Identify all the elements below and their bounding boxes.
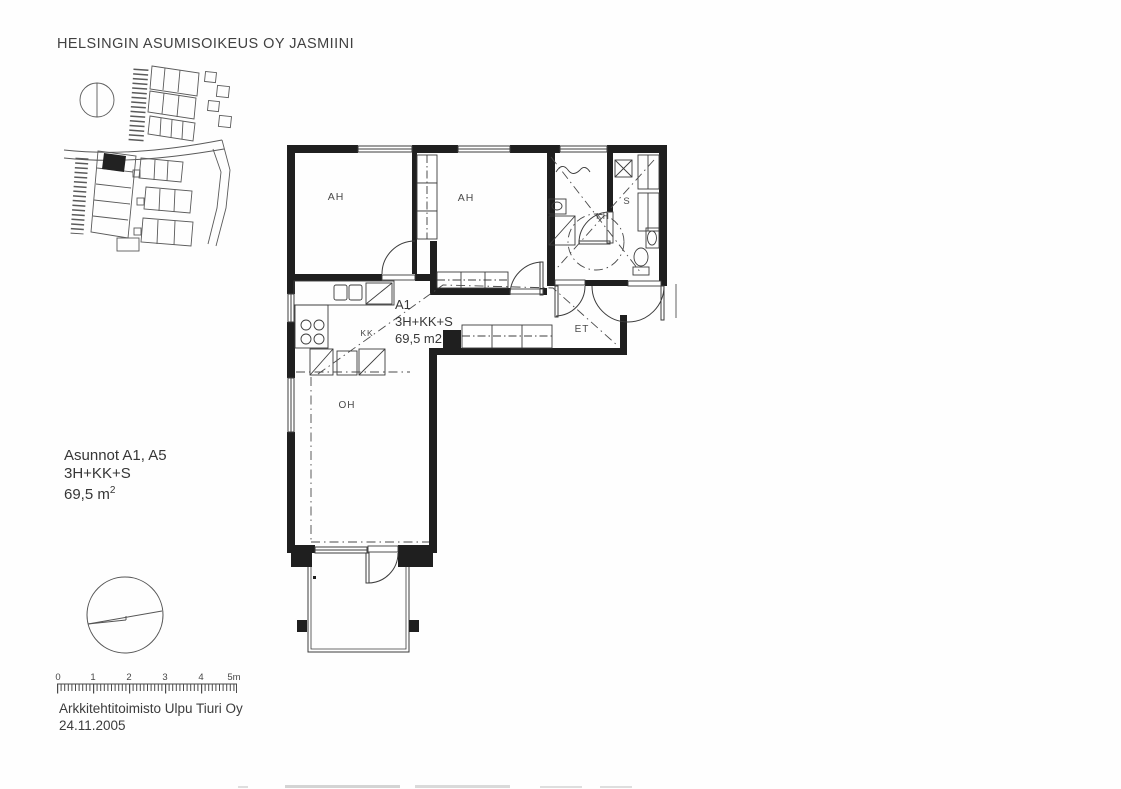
scale-labels: 0 1 2 3 4 5m <box>55 672 240 683</box>
site-road <box>64 140 230 246</box>
toilet-symbol <box>634 248 648 266</box>
duct-shaft <box>443 330 461 348</box>
sauna-bench <box>638 155 659 189</box>
floor-plan: AH AH KH S KK ET OH A1 3H+KK+S 69,5 m2 <box>287 145 676 652</box>
door-entry <box>592 286 664 322</box>
apartment-area-text: 69,5 m2 <box>395 331 442 346</box>
label-entry-hall: ET <box>575 324 590 335</box>
site-highlighted-building <box>102 153 126 172</box>
turning-circle <box>568 214 624 270</box>
scale-bar: 0 1 2 3 4 5m <box>55 672 240 693</box>
apartment-id-text: A1 <box>395 297 411 312</box>
door-bathroom <box>556 286 585 316</box>
shower-squiggle <box>556 166 590 173</box>
scale-label-3: 3 <box>162 672 167 683</box>
door-openings <box>368 212 661 552</box>
title-block: Arkkitehtitoimisto Ulpu Tiuri Oy 24.11.2… <box>59 701 243 734</box>
label-bathroom: KH <box>596 211 610 221</box>
scale-label-0: 0 <box>55 672 60 683</box>
architectural-drawing-sheet: { "document": { "title": "HELSINGIN ASUM… <box>0 0 1121 789</box>
compass-circle <box>87 577 163 653</box>
door-balcony <box>368 553 398 583</box>
apartments-line: Asunnot A1, A5 <box>64 447 167 465</box>
area-line: 69,5 m2 <box>64 482 167 504</box>
compass <box>87 577 163 653</box>
scale-label-2: 2 <box>126 672 131 683</box>
label-kitchenette: KK <box>360 328 373 338</box>
drawing-canvas: AH AH KH S KK ET OH A1 3H+KK+S 69,5 m2 <box>0 0 1121 789</box>
drawing-date: 24.11.2005 <box>59 718 243 735</box>
apartment-type-text: 3H+KK+S <box>395 314 453 329</box>
architect-name: Arkkitehtitoimisto Ulpu Tiuri Oy <box>59 701 243 718</box>
scale-label-1: 1 <box>90 672 95 683</box>
site-plan <box>64 66 231 251</box>
apartment-info-block: Asunnot A1, A5 3H+KK+S 69,5 m2 <box>64 447 167 504</box>
label-bedroom2: AH <box>458 192 475 204</box>
cooktop-burner <box>301 320 311 330</box>
scan-artifacts <box>238 785 632 788</box>
label-sauna: S <box>623 196 630 207</box>
balcony-post <box>297 620 307 632</box>
area-superscript: 2 <box>110 485 116 496</box>
page-title: HELSINGIN ASUMISOIKEUS OY JASMIINI <box>57 36 354 52</box>
balcony <box>297 567 419 652</box>
site-buildings-lower <box>91 151 193 251</box>
scale-label-5m: 5m <box>227 672 240 683</box>
scale-label-4: 4 <box>198 672 203 683</box>
label-living-room: OH <box>339 400 356 411</box>
door-bedroom1 <box>382 241 415 274</box>
type-line: 3H+KK+S <box>64 465 167 483</box>
site-buildings-upper <box>148 66 231 141</box>
sink-symbol <box>334 285 347 300</box>
north-circle-icon <box>80 83 114 117</box>
kitchen-fixtures <box>294 281 394 375</box>
label-bedroom1: AH <box>328 191 345 203</box>
